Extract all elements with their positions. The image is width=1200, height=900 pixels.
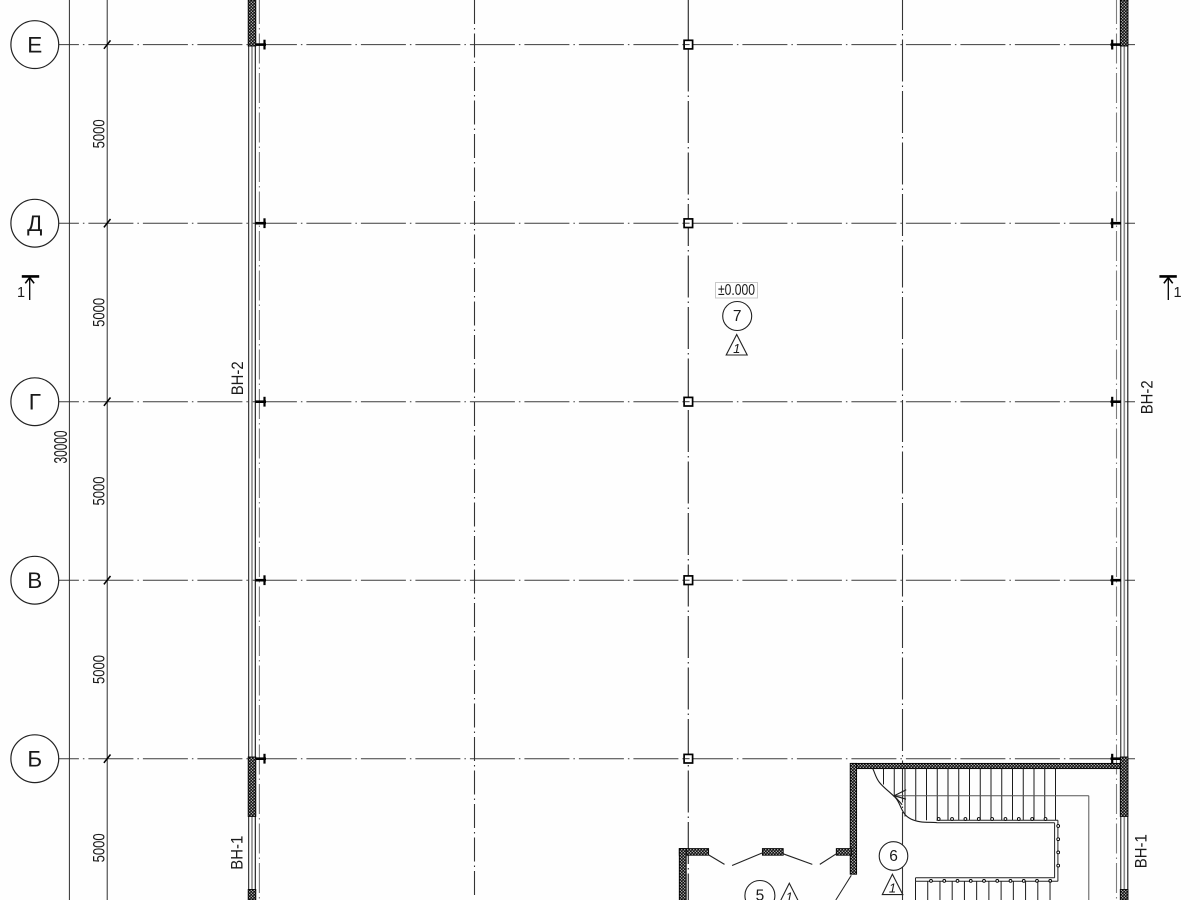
svg-text:5000: 5000 [90, 119, 109, 148]
svg-text:В: В [27, 568, 42, 593]
svg-text:1: 1 [733, 341, 740, 356]
svg-text:6: 6 [889, 848, 898, 865]
svg-text:Е: Е [27, 33, 42, 58]
svg-text:5000: 5000 [90, 477, 109, 506]
svg-text:ВН-1: ВН-1 [1132, 834, 1151, 868]
svg-text:1: 1 [17, 285, 25, 301]
svg-text:ВН-2: ВН-2 [1138, 380, 1157, 414]
svg-text:5: 5 [756, 888, 765, 900]
svg-text:Г: Г [29, 390, 41, 415]
svg-text:Б: Б [27, 747, 42, 772]
svg-text:5000: 5000 [90, 833, 109, 862]
svg-text:ВН-2: ВН-2 [228, 361, 247, 395]
svg-text:1: 1 [786, 889, 793, 900]
svg-text:7: 7 [733, 308, 742, 325]
svg-text:5000: 5000 [90, 298, 109, 327]
svg-text:5000: 5000 [90, 655, 109, 684]
svg-text:1: 1 [889, 881, 896, 896]
svg-text:Д: Д [27, 211, 42, 236]
svg-text:ВН-1: ВН-1 [228, 836, 247, 870]
svg-text:±0.000: ±0.000 [718, 282, 755, 299]
svg-text:30000: 30000 [51, 431, 71, 464]
svg-text:1: 1 [1173, 285, 1181, 301]
